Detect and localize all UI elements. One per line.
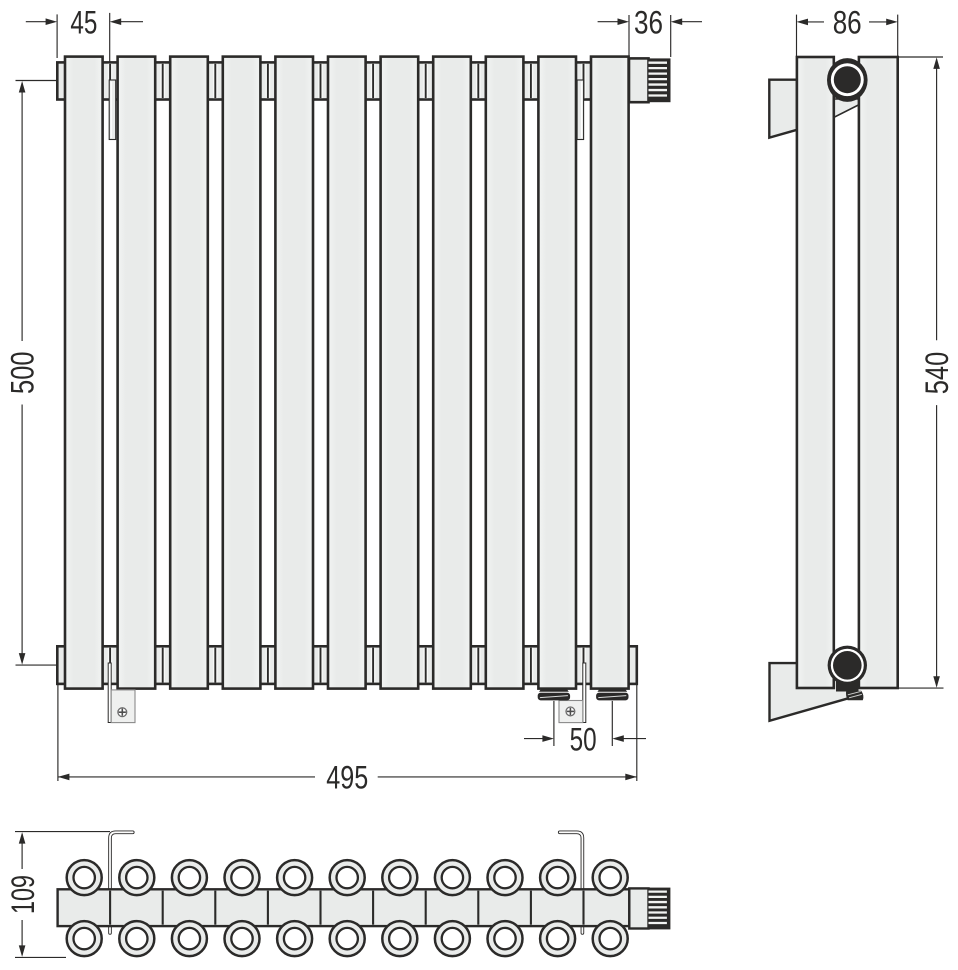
svg-text:540: 540: [919, 352, 955, 395]
svg-text:50: 50: [570, 721, 597, 757]
svg-text:495: 495: [326, 760, 368, 796]
svg-text:500: 500: [5, 351, 41, 394]
svg-text:86: 86: [833, 5, 862, 41]
svg-text:109: 109: [5, 875, 41, 914]
svg-text:36: 36: [634, 5, 663, 41]
svg-text:45: 45: [70, 5, 97, 41]
